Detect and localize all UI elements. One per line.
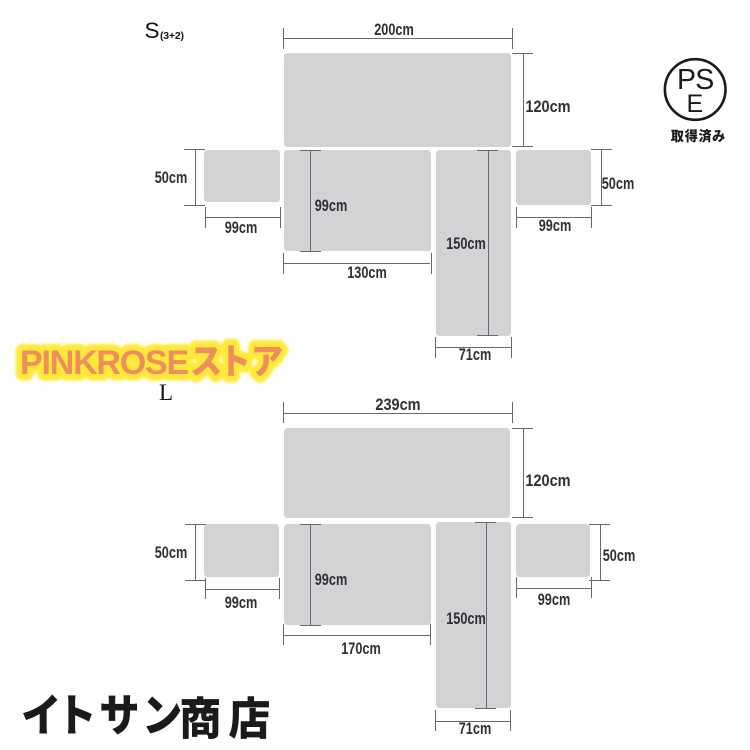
svg-text:E: E bbox=[687, 90, 704, 118]
svg-text:PINKROSE: PINKROSE bbox=[20, 344, 189, 382]
